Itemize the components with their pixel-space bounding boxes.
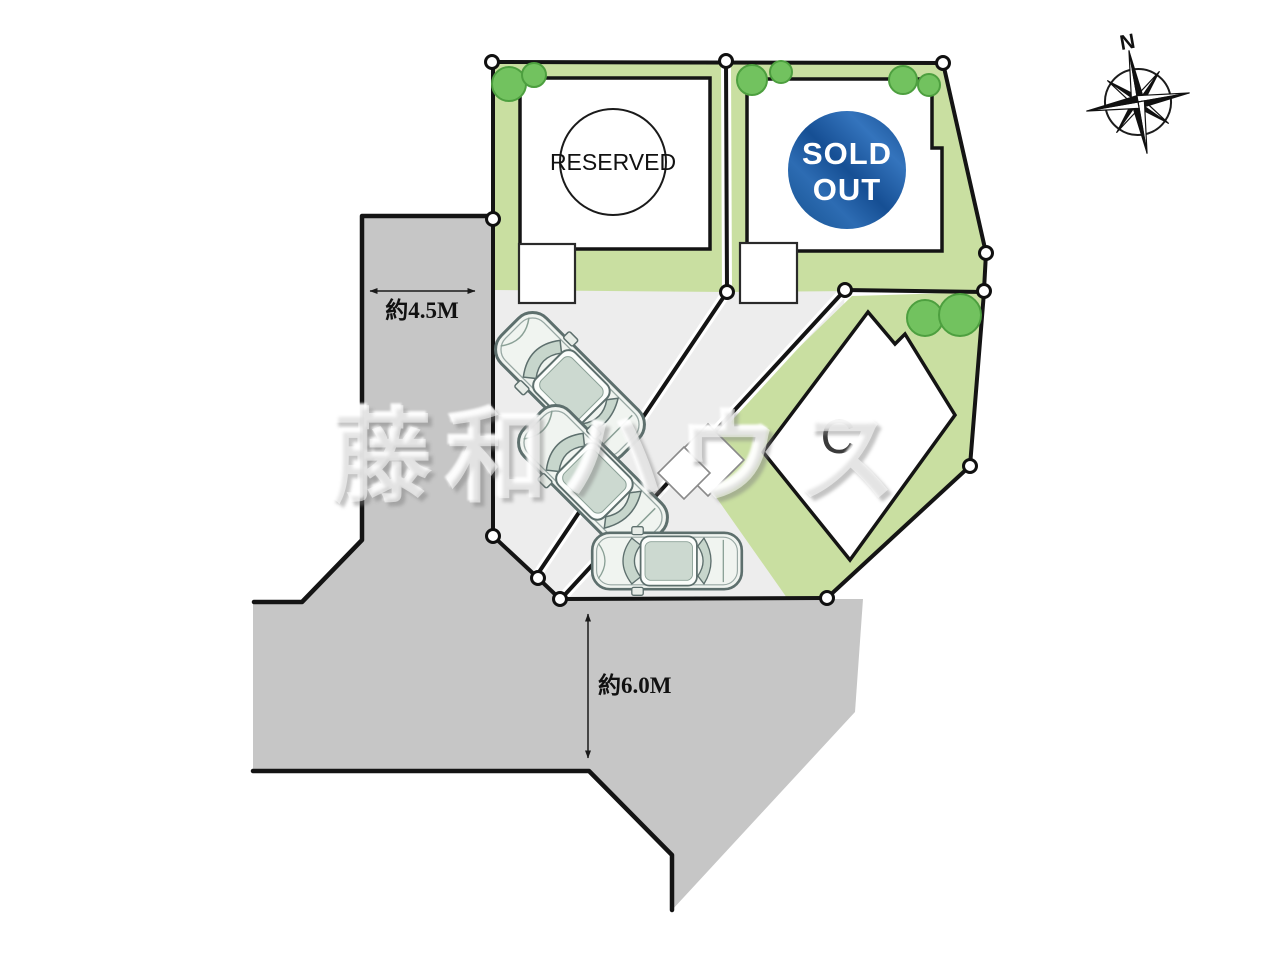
- sold-out-badge-line1: SOLD: [802, 136, 892, 171]
- tree: [889, 66, 917, 94]
- tree: [492, 67, 526, 101]
- vertex-marker: [937, 57, 950, 70]
- vertex-marker: [554, 593, 567, 606]
- site-plan: RESERVED SOLD OUT C: [0, 0, 1280, 960]
- tree: [918, 74, 940, 96]
- parked-car: [592, 527, 742, 596]
- tree: [770, 61, 792, 83]
- dimension-road-west-label: 約4.5M: [385, 297, 459, 323]
- vertex-marker: [486, 56, 499, 69]
- vertex-marker: [821, 592, 834, 605]
- vertex-marker: [720, 55, 733, 68]
- tree: [737, 65, 767, 95]
- tree: [522, 63, 546, 87]
- compass-n-label: N: [1118, 30, 1137, 55]
- porch-sold: [740, 243, 797, 303]
- dimension-road-south-label: 約6.0M: [598, 672, 672, 698]
- vertex-marker: [839, 284, 852, 297]
- compass-rose: N: [1074, 22, 1198, 162]
- site-plan-drawing: RESERVED SOLD OUT C: [0, 0, 1280, 960]
- vertex-marker: [487, 530, 500, 543]
- vertex-marker: [980, 247, 993, 260]
- tree: [907, 300, 943, 336]
- plot-c-label: C: [821, 411, 856, 464]
- porch-reserved: [519, 244, 575, 303]
- plot-c-north-boundary: [845, 290, 984, 292]
- vertex-marker: [721, 286, 734, 299]
- tree: [939, 294, 981, 336]
- vertex-marker: [978, 285, 991, 298]
- sold-out-badge-line2: OUT: [813, 172, 881, 207]
- reserved-badge-label: RESERVED: [550, 149, 676, 175]
- road-south-border: [253, 771, 672, 910]
- vertex-marker: [532, 572, 545, 585]
- vertex-marker: [964, 460, 977, 473]
- plot-divider-line: [726, 61, 727, 292]
- site-north-boundary: [492, 62, 943, 63]
- vertex-marker: [487, 213, 500, 226]
